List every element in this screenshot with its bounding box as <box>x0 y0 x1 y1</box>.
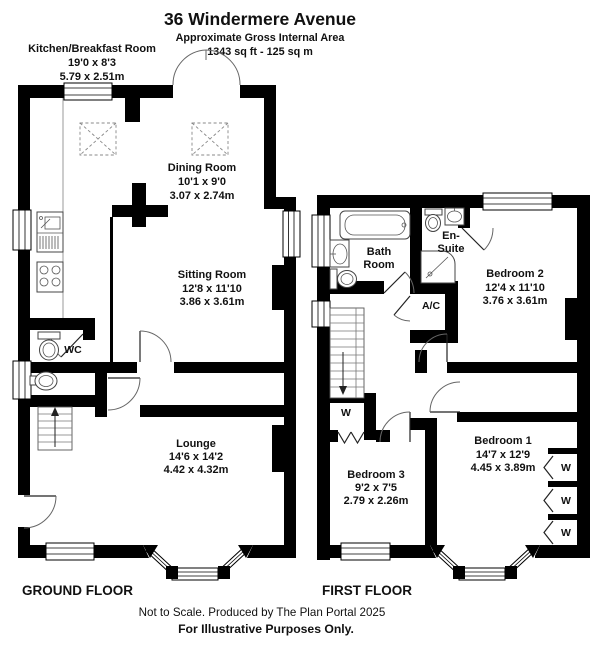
chimney-breast-bedroom2 <box>565 298 577 340</box>
header-area: 1343 sq ft - 125 sq m <box>207 46 313 58</box>
window-kitchen-left <box>13 210 31 250</box>
door-bathroom <box>384 272 414 293</box>
page-title: 36 Windermere Avenue <box>164 9 356 29</box>
bedroom1-imperial: 14'7 x 12'9 <box>476 449 530 461</box>
bay-window-lounge <box>143 545 253 582</box>
ensuite-toilet-icon <box>425 209 442 232</box>
first-floor-stairs <box>330 308 364 398</box>
wardrobe-label-1: W <box>561 462 571 474</box>
bifold-door-wardrobe-3 <box>544 521 553 544</box>
bathroom-line2: Room <box>363 259 394 271</box>
bedroom3-imperial: 9'2 x 7'5 <box>355 482 397 494</box>
kitchen-name: Kitchen/Breakfast Room <box>28 43 156 55</box>
first-floor-plan: Bath Room En- Suite A/C Bedroom 2 12'4 x… <box>312 193 590 598</box>
wardrobe-label-cupboard: W <box>341 407 351 419</box>
wardrobe-divider <box>548 481 577 487</box>
room-bedroom2-label: Bedroom 2 12'4 x 11'10 3.76 x 3.61m <box>483 268 548 307</box>
bedroom2-imperial: 12'4 x 11'10 <box>485 282 545 294</box>
wardrobe-label-2: W <box>561 495 571 507</box>
window-landing-left <box>312 301 330 327</box>
bifold-door-wardrobe-2 <box>544 489 553 512</box>
bedroom2-metric: 3.76 x 3.61m <box>483 295 548 307</box>
room-bedroom3-label: Bedroom 3 9'2 x 7'5 2.79 x 2.26m <box>344 469 409 507</box>
ground-floor-stairs <box>38 407 72 450</box>
ground-floor-plan: Kitchen/Breakfast Room 19'0 x 8'3 5.79 x… <box>13 43 300 598</box>
footer: Not to Scale. Produced by The Plan Porta… <box>139 606 386 636</box>
first-floor-label: FIRST FLOOR <box>322 583 412 598</box>
lounge-imperial: 14'6 x 14'2 <box>169 451 223 463</box>
bathroom-toilet-icon <box>330 269 357 289</box>
room-lounge-label: Lounge 14'6 x 14'2 4.42 x 4.32m <box>164 438 229 476</box>
wardrobe-divider <box>548 514 577 520</box>
bifold-door-cupboard <box>338 432 364 443</box>
door-airing-cupboard <box>394 296 410 321</box>
room-sitting-label: Sitting Room 12'8 x 11'10 3.86 x 3.61m <box>178 269 247 308</box>
footer-illustrative: For Illustrative Purposes Only. <box>178 622 354 636</box>
room-wc-label: WC <box>64 344 82 356</box>
room-airing-cupboard-label: A/C <box>422 300 441 312</box>
kitchen-metric: 5.79 x 2.51m <box>60 71 125 83</box>
floor-plan-svg: 36 Windermere Avenue Approximate Gross I… <box>0 0 615 650</box>
dining-metric: 3.07 x 2.74m <box>170 190 235 202</box>
room-ensuite-label: En- Suite <box>438 230 465 255</box>
sitting-metric: 3.86 x 3.61m <box>180 296 245 308</box>
room-bathroom-label: Bath Room <box>363 246 394 271</box>
dining-name: Dining Room <box>168 162 237 174</box>
window-cloakroom-left <box>13 361 31 399</box>
door-sitting-room <box>140 331 171 362</box>
wc-toilet-icon <box>38 332 60 360</box>
lounge-metric: 4.42 x 4.32m <box>164 464 229 476</box>
door-front-entrance <box>24 496 56 528</box>
header-subtitle: Approximate Gross Internal Area <box>176 32 346 44</box>
wc-basin-icon <box>30 372 57 390</box>
bay-window-bedroom1 <box>430 545 540 582</box>
bedroom3-name: Bedroom 3 <box>347 469 404 481</box>
lounge-name: Lounge <box>176 438 216 450</box>
bathtub-icon <box>340 211 410 239</box>
door-ensuite <box>462 228 493 250</box>
bathroom-basin-icon <box>330 240 349 267</box>
ensuite-basin-icon <box>445 208 464 225</box>
ensuite-line1: En- <box>442 230 460 242</box>
window-bedroom3-bottom <box>341 543 390 560</box>
kitchen-sink-icon <box>37 212 63 252</box>
bedroom3-metric: 2.79 x 2.26m <box>344 495 409 507</box>
bedroom2-name: Bedroom 2 <box>486 268 543 280</box>
chimney-breast-sitting <box>272 265 284 310</box>
ensuite-line2: Suite <box>438 243 465 255</box>
skylight-kitchen-icon <box>80 123 116 155</box>
bathroom-line1: Bath <box>367 246 392 258</box>
dining-imperial: 10'1 x 9'0 <box>178 176 226 188</box>
bedroom1-name: Bedroom 1 <box>474 435 531 447</box>
room-kitchen-label: Kitchen/Breakfast Room 19'0 x 8'3 5.79 x… <box>28 43 156 83</box>
wardrobe-label-3: W <box>561 527 571 539</box>
footer-disclaimer: Not to Scale. Produced by The Plan Porta… <box>139 606 386 619</box>
ground-floor-walls <box>18 85 296 558</box>
bifold-door-wardrobe-1 <box>544 456 553 479</box>
window-sitting-right <box>283 211 300 257</box>
bedroom1-metric: 4.45 x 3.89m <box>471 462 536 474</box>
window-front-left <box>46 543 94 560</box>
wardrobe-divider <box>548 448 577 454</box>
room-bedroom1-label: Bedroom 1 14'7 x 12'9 4.45 x 3.89m <box>471 435 536 474</box>
kitchen-imperial: 19'0 x 8'3 <box>68 57 116 69</box>
floor-plan-page: 36 Windermere Avenue Approximate Gross I… <box>0 0 615 650</box>
window-bedroom2-top <box>483 193 552 210</box>
shower-icon <box>421 251 455 283</box>
window-kitchen-top <box>64 83 112 100</box>
door-bedroom1 <box>430 382 460 412</box>
window-bathroom-left <box>312 215 330 267</box>
room-dining-label: Dining Room 10'1 x 9'0 3.07 x 2.74m <box>168 162 237 202</box>
door-lounge <box>108 378 140 410</box>
kitchen-hob-icon <box>37 262 63 292</box>
ground-floor-label: GROUND FLOOR <box>22 583 133 598</box>
skylight-dining-icon <box>192 123 228 155</box>
sitting-name: Sitting Room <box>178 269 247 281</box>
header: 36 Windermere Avenue Approximate Gross I… <box>164 9 356 58</box>
sitting-imperial: 12'8 x 11'10 <box>182 283 242 295</box>
chimney-breast-lounge <box>272 425 284 472</box>
